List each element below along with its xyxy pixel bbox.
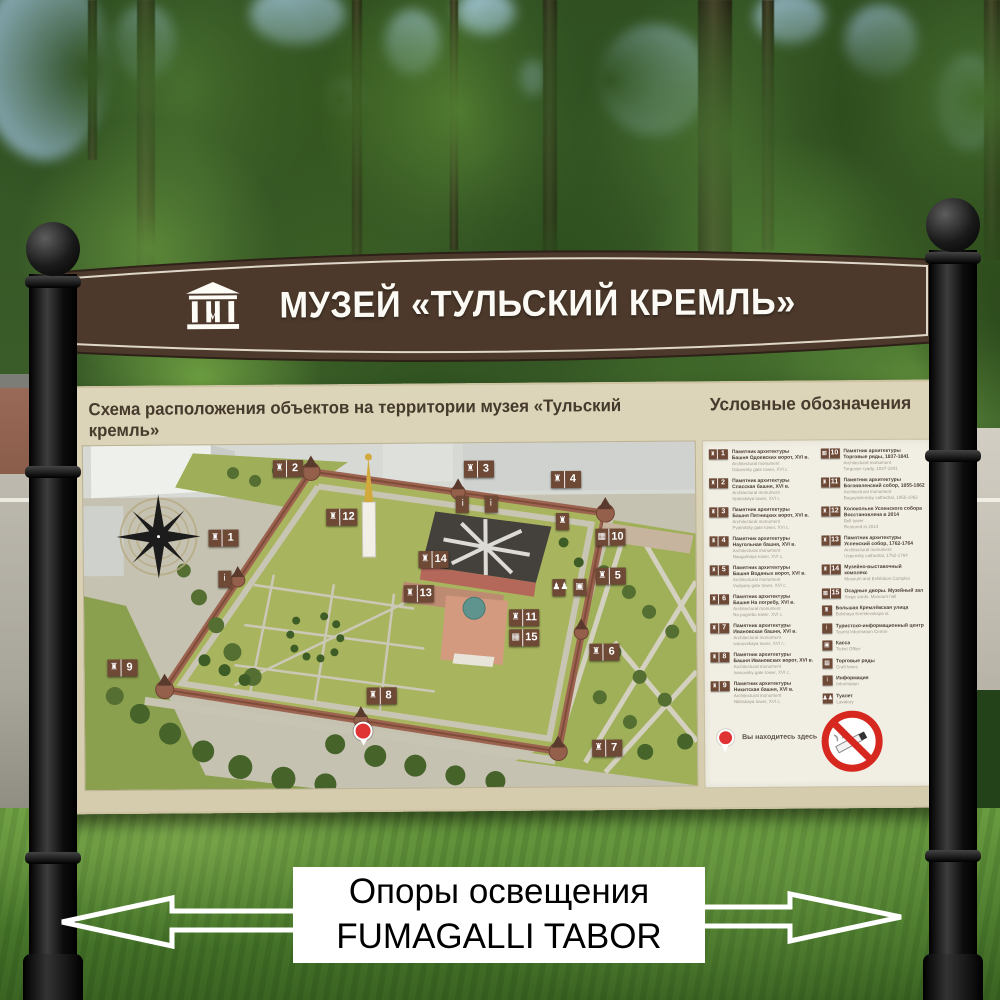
legend-text: Колокольня Успенского собораВосстановлен… [844, 506, 926, 530]
legend-row: ▣КассаTicket Office [822, 640, 927, 652]
museum-icon: ♜14 [821, 564, 840, 574]
information-board: Схема расположения объектов на территори… [60, 380, 936, 815]
tourist-info-icon: i [822, 623, 832, 633]
siege-yards-icon: ▦ [509, 629, 523, 646]
craft-rows-icon: ▦ [822, 658, 832, 668]
legend-text: Туристско-информационный центрTourist In… [836, 622, 927, 634]
map-marker-number: 11 [523, 609, 539, 626]
icon-glyph: ▦ [822, 658, 832, 668]
legend-text: Торговые рядыCraft lanes [836, 657, 927, 669]
map-marker-number: 7 [606, 740, 622, 757]
legend-row: ♜9Памятник архитектурыНикитская башня, X… [711, 681, 816, 705]
tower-icon: ♜7 [710, 623, 729, 633]
legend-row: ♜Большая Кремлёвская улицаBolshaya Kreml… [822, 605, 927, 617]
bell-tower-icon: ♜ [326, 509, 340, 526]
legend-text: Памятник архитектурыБашня Ивановских вор… [733, 652, 815, 676]
legend-number: 11 [830, 477, 840, 487]
bell-tower-icon: ♜ [404, 585, 418, 602]
trade-rows-icon: ▦10 [820, 448, 839, 458]
museum-title: МУЗЕЙ «ТУЛЬСКИЙ КРЕМЛЬ» [280, 281, 797, 327]
tower-icon: ♜4 [710, 536, 729, 546]
legend-number: 5 [719, 565, 729, 575]
siege-yards-icon: ▦15 [821, 588, 840, 598]
tower-icon: ♜3 [709, 507, 728, 517]
icon-glyph: ♜ [710, 594, 719, 604]
legend-column-1: ♜1Памятник архитектурыБашня Одоевских во… [709, 449, 816, 712]
trade-rows-icon: ▦ [595, 529, 609, 546]
you-are-here-legend: Вы находитесь здесь [719, 731, 817, 745]
tower-icon: ♜ [592, 740, 606, 757]
legend-line-en: Na pogrebu tower, XVI c. [733, 611, 815, 617]
legend-text: Памятник архитектурыБогоявленский собор,… [844, 477, 926, 501]
map-marker-8: ♜8 [367, 687, 397, 704]
icon-glyph: ▦ [821, 588, 830, 598]
map-marker-13: ♜13 [404, 585, 434, 602]
map-marker-number: 5 [610, 568, 626, 585]
caption-box: Опоры освещения FUMAGALLI TABOR [293, 867, 705, 963]
legend-text: Большая Кремлёвская улицаBolshaya Kremle… [836, 605, 927, 617]
icon-glyph: ▦ [820, 448, 829, 458]
icon-glyph: ♜ [821, 506, 830, 516]
cathedral-icon: ♜ [509, 609, 523, 626]
legend-text: Памятник архитектурыНикитская башня, XVI… [734, 681, 816, 705]
legend-number: 8 [719, 652, 729, 662]
legend-line-en: Museum and Exhibition Complex [844, 576, 926, 582]
street-icon: ♜ [822, 605, 832, 615]
tower-icon: ♜ [273, 460, 287, 477]
legend-line-en: Craft lanes [836, 663, 927, 669]
decor [25, 276, 81, 288]
no-smoking-icon [821, 708, 884, 774]
map-marker-11: ♜11 [509, 609, 539, 626]
site-map-illustration: ♜1♜2♜3♜4♜5♜6♜7♜8♜9▦10♜11♜12♜13♜14▦15iii♜… [83, 441, 698, 790]
map-marker-number: 13 [418, 585, 434, 602]
legend-text: Памятник архитектурыБашня Водяных ворот,… [733, 565, 815, 589]
legend-line-en: Nikitskaya tower, XVI c. [734, 698, 816, 704]
cathedral-icon: ♜13 [821, 535, 840, 545]
legend-row: iИнформацияInformation [822, 675, 927, 687]
icon-glyph: ♜ [821, 535, 830, 545]
ticket-office-map-icon: ▣ [573, 579, 586, 596]
legend-line-en: Odoevsky gate tower, XVI c. [732, 466, 814, 472]
museum-logo-icon: М [184, 282, 242, 330]
legend-line-en: Ticket Office [836, 646, 927, 652]
legend-row: ▦10Памятник архитектурыТорговые ряды, 18… [820, 448, 925, 472]
legend-line-en: Siege yards. Museum hall [844, 593, 926, 599]
icon-glyph: ♜ [711, 681, 720, 691]
ticket-office-icon: ▣ [573, 579, 586, 596]
map-marker-4: ♜4 [551, 471, 581, 488]
legend-number: 3 [718, 507, 728, 517]
tower-icon: ♜ [209, 530, 223, 547]
information-map-icon: i [456, 496, 469, 513]
legend-row: ♟♟ТуалетLavatory [822, 692, 927, 704]
tower-icon: ♜ [367, 688, 381, 705]
legend-row: ♜2Памятник архитектурыСпасская башня, XV… [709, 478, 814, 502]
legend-number: 15 [830, 588, 840, 598]
map-marker-number: 15 [523, 629, 539, 646]
legend-row: ▦15Осадные дворы. Музейный залSiege yard… [821, 587, 926, 599]
legend-text: Памятник архитектурыБашня Пятницких воро… [732, 507, 814, 531]
map-marker-15: ▦15 [509, 629, 539, 646]
legend-line-en: Uspensky cathedral, 1762-1764 [844, 552, 926, 558]
legend-row: ▦Торговые рядыCraft lanes [822, 657, 927, 669]
map-marker-number: 12 [340, 509, 356, 526]
icon-glyph: i [822, 675, 832, 685]
legend-line-en: Information [836, 681, 927, 687]
tourist-info-icon: i [484, 495, 497, 512]
legend-line-en: Ivanovsky gate tower, XVI c. [734, 669, 816, 675]
legend-line-en: Bolshaya Kremlevskaya st. [836, 611, 927, 617]
legend-title: Условные обозначения [699, 393, 922, 416]
legend-number: 10 [829, 448, 839, 458]
legend-line-en: Pyatnitsky gate tower, XVI c. [732, 524, 814, 530]
icon-glyph: ♜ [710, 652, 719, 662]
icon-glyph: ♜ [709, 507, 718, 517]
left-sign-post [29, 274, 77, 1000]
legend-number: 4 [719, 536, 729, 546]
map-marker-number: 6 [604, 643, 620, 660]
map-marker-9: ♜9 [107, 659, 137, 676]
legend-row: ♜3Памятник архитектурыБашня Пятницких во… [709, 507, 814, 531]
icon-glyph: ♜ [709, 449, 718, 459]
legend-number: 9 [720, 681, 730, 691]
tower-icon: ♜2 [709, 478, 728, 488]
information-icon: i [822, 675, 832, 685]
right-sign-post [929, 250, 977, 1000]
legend-text: Памятник архитектурыБашня Одоевских воро… [732, 449, 814, 473]
legend-text: ИнформацияInformation [836, 675, 927, 687]
tower-icon: ♜ [590, 644, 604, 661]
legend-text: Памятник архитектурыНаугольная башня, XV… [733, 536, 815, 560]
tower-icon: ♜8 [710, 652, 729, 662]
legend-row: ♜6Памятник архитектурыБашня На погребу, … [710, 594, 815, 618]
map-marker-number: 4 [565, 471, 581, 488]
you-are-here-pin-icon [719, 731, 732, 744]
information-icon: i [456, 496, 469, 513]
map-marker-number: 9 [121, 659, 137, 676]
map-marker-3: ♜3 [464, 461, 494, 478]
decor [925, 252, 981, 264]
legend-text: Памятник архитектурыСпасская башня, XVI … [732, 478, 814, 502]
map-artwork [83, 441, 698, 790]
decor [925, 450, 981, 462]
legend-row: ♜12Колокольня Успенского собораВосстанов… [821, 506, 926, 530]
legend-row: ♜4Памятник архитектурыНаугольная башня, … [710, 536, 815, 560]
museum-icon: ♜ [419, 551, 433, 568]
map-marker-6: ♜6 [590, 643, 620, 660]
legend-row: ♜7Памятник архитектурыИвановская башня, … [710, 623, 815, 647]
legend-text: Памятник архитектурыТорговые ряды, 1837-… [843, 448, 925, 472]
map-marker-number: 8 [381, 687, 397, 704]
caption-line-2: FUMAGALLI TABOR [293, 915, 705, 959]
tower-icon: ♜ [551, 471, 565, 488]
tower-icon: ♜ [464, 461, 478, 478]
tower-icon: ♜ [596, 568, 610, 585]
street-icon: ♜ [556, 513, 569, 530]
map-marker-12: ♜12 [326, 509, 356, 526]
ticket-office-icon: ▣ [822, 640, 832, 650]
icon-glyph: i [822, 623, 832, 633]
map-marker-14: ♜14 [419, 551, 449, 568]
legend-row: ♜14Музейно-выставочный комплексMuseum an… [821, 564, 926, 582]
tower-icon: ♜9 [711, 681, 730, 691]
museum-logo-letter: М [206, 304, 221, 323]
legend-text: Осадные дворы. Музейный залSiege yards. … [844, 587, 926, 599]
legend-number: 6 [719, 594, 729, 604]
lavatory-icon: ♟♟ [822, 693, 832, 703]
legend-text: КассаTicket Office [836, 640, 927, 652]
left-post-ball-finial [26, 222, 80, 276]
legend-number: 7 [719, 623, 729, 633]
icon-glyph: ♜ [709, 478, 718, 488]
legend-line-ru: Туристско-информационный центр [836, 622, 927, 629]
legend-line-en: Ivanovskaya tower, XVI c. [733, 640, 815, 646]
legend-row: iТуристско-информационный центрTourist I… [822, 622, 927, 634]
legend-text: Памятник архитектурыБашня На погребу, XV… [733, 594, 815, 618]
decor [25, 466, 81, 478]
tourist-info-map-icon: i [484, 495, 497, 512]
legend-text: Памятник архитектурыУспенский собор, 176… [844, 535, 926, 559]
street-map-icon: ♜ [556, 513, 569, 530]
legend-line-ru: Осадные дворы. Музейный зал [844, 587, 926, 594]
bell-tower-icon: ♜12 [821, 506, 840, 516]
legend-line-en: Lavatory [836, 698, 927, 704]
icon-glyph: ♜ [821, 564, 830, 574]
legend-line-en: Torgovye ryady, 1837-1841 [843, 465, 925, 471]
legend-text: Музейно-выставочный комплексMuseum and E… [844, 564, 926, 582]
header-content: М МУЗЕЙ «ТУЛЬСКИЙ КРЕМЛЬ» [56, 249, 945, 359]
map-marker-10: ▦10 [595, 528, 625, 545]
legend-number: 14 [830, 564, 840, 574]
legend-panel: ♜1Памятник архитектурыБашня Одоевских во… [703, 440, 934, 788]
map-marker-1: ♜1 [209, 529, 239, 546]
map-marker-number: 14 [433, 551, 449, 568]
legend-line-en: Restored in 2014 [844, 523, 926, 529]
icon-glyph: ♜ [710, 623, 719, 633]
legend-line-en: Spasskaya tower, XVI c. [732, 495, 814, 501]
information-map-icon: i [218, 571, 231, 588]
legend-line-ru: Музейно-выставочный комплекс [844, 564, 926, 577]
tower-icon: ♜6 [710, 594, 729, 604]
map-marker-7: ♜7 [592, 740, 622, 757]
lavatory-map-icon: ♟♟ [552, 579, 565, 596]
icon-glyph: ♜ [822, 605, 832, 615]
map-marker-number: 2 [287, 460, 303, 477]
decor [923, 954, 983, 1000]
icon-glyph: ♜ [710, 565, 719, 575]
map-marker-2: ♜2 [273, 460, 303, 477]
decor [25, 852, 81, 864]
caption-line-1: Опоры освещения [293, 868, 705, 915]
legend-line-en: Vodyany gate tower, XVI c. [733, 582, 815, 588]
legend-number: 12 [830, 506, 840, 516]
legend-row: ♜1Памятник архитектурыБашня Одоевских во… [709, 449, 814, 473]
you-are-here-label: Вы находитесь здесь [742, 734, 817, 742]
legend-column-2: ▦10Памятник архитектурыТорговые ряды, 18… [820, 448, 927, 711]
legend-text: ТуалетLavatory [836, 692, 927, 704]
information-icon: i [218, 571, 231, 588]
map-marker-5: ♜5 [596, 568, 626, 585]
right-post-ball-finial [926, 198, 980, 252]
map-marker-number: 3 [478, 461, 494, 478]
legend-row: ♜11Памятник архитектурыБогоявленский соб… [821, 477, 926, 501]
legend-line-en: Naugolnaya tower, XVI c. [733, 553, 815, 559]
tower-icon: ♜5 [710, 565, 729, 575]
icon-glyph: ▣ [822, 640, 832, 650]
map-marker-number: 10 [609, 528, 625, 545]
icon-glyph: ♜ [710, 536, 719, 546]
legend-row: ♜13Памятник архитектурыУспенский собор, … [821, 535, 926, 559]
legend-number: 1 [718, 449, 728, 459]
map-title: Схема расположения объектов на территори… [88, 395, 664, 442]
legend-row: ♜5Памятник архитектурыБашня Водяных воро… [710, 565, 815, 589]
tower-icon: ♜1 [709, 449, 728, 459]
lavatory-icon: ♟♟ [552, 579, 565, 596]
legend-number: 13 [830, 535, 840, 545]
legend-line-en: Bogoyavlensky cathedral, 1855-1862 [844, 494, 926, 500]
icon-glyph: ♟♟ [822, 693, 832, 703]
decor [925, 850, 981, 862]
legend-text: Памятник архитектурыИвановская башня, XV… [733, 623, 815, 647]
tower-icon: ♜ [107, 659, 121, 676]
icon-glyph: ♜ [821, 477, 830, 487]
decor [23, 954, 83, 1000]
legend-number: 2 [718, 478, 728, 488]
map-marker-number: 1 [223, 529, 239, 546]
legend-row: ♜8Памятник архитектурыБашня Ивановских в… [710, 652, 815, 676]
legend-columns: ♜1Памятник архитектурыБашня Одоевских во… [709, 448, 927, 712]
cathedral-icon: ♜11 [821, 477, 840, 487]
you-are-here-dot [353, 721, 372, 740]
legend-line-en: Tourist Information Centre [836, 628, 927, 634]
